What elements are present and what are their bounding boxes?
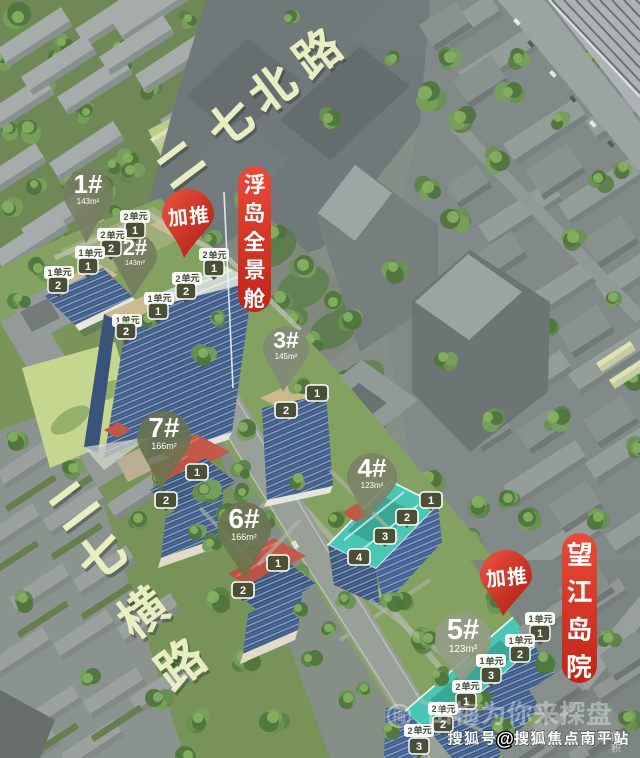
svg-text:4#: 4#: [358, 453, 387, 483]
svg-text:@: @: [496, 729, 514, 749]
svg-text:1#: 1#: [74, 169, 103, 199]
svg-text:1: 1: [537, 628, 543, 640]
svg-text:1: 1: [479, 656, 484, 666]
svg-text:143m²: 143m²: [77, 197, 100, 206]
svg-text:1: 1: [211, 263, 217, 275]
svg-text:6#: 6#: [228, 503, 260, 534]
svg-text:2: 2: [283, 405, 289, 417]
svg-text:2: 2: [123, 326, 129, 338]
svg-text:2: 2: [108, 243, 114, 255]
svg-text:166m²: 166m²: [151, 441, 177, 451]
svg-text:145m²: 145m²: [275, 352, 298, 361]
svg-text:1: 1: [155, 306, 161, 318]
svg-text:7#: 7#: [148, 412, 180, 443]
svg-text:3: 3: [416, 741, 422, 753]
svg-text:1: 1: [428, 495, 434, 507]
svg-text:2: 2: [100, 230, 105, 240]
svg-text:1: 1: [314, 388, 320, 400]
svg-text:1: 1: [508, 636, 513, 646]
svg-text:3#: 3#: [273, 327, 299, 353]
svg-text:5#: 5#: [447, 614, 479, 646]
svg-text:2: 2: [123, 212, 128, 222]
svg-text:1: 1: [194, 467, 200, 479]
svg-text:2: 2: [407, 726, 412, 736]
svg-text:2: 2: [455, 682, 460, 692]
svg-text:1: 1: [528, 614, 533, 624]
svg-text:2: 2: [240, 585, 246, 597]
svg-text:123m²: 123m²: [361, 481, 384, 490]
svg-text:2: 2: [163, 495, 169, 507]
svg-text:2: 2: [202, 250, 207, 260]
svg-text:143m²: 143m²: [125, 260, 146, 267]
svg-text:4: 4: [356, 552, 363, 564]
svg-text:2: 2: [55, 280, 61, 292]
svg-text:3: 3: [382, 531, 388, 543]
svg-text:2: 2: [517, 649, 523, 661]
svg-text:123m²: 123m²: [449, 644, 478, 655]
svg-text:2: 2: [183, 286, 189, 298]
svg-text:2: 2: [404, 512, 410, 524]
svg-text:3: 3: [488, 670, 494, 682]
svg-text:1: 1: [85, 261, 91, 273]
svg-text:166m²: 166m²: [231, 532, 257, 542]
svg-text:1: 1: [132, 225, 138, 237]
svg-text:1: 1: [275, 558, 281, 570]
svg-text:1: 1: [78, 248, 83, 258]
